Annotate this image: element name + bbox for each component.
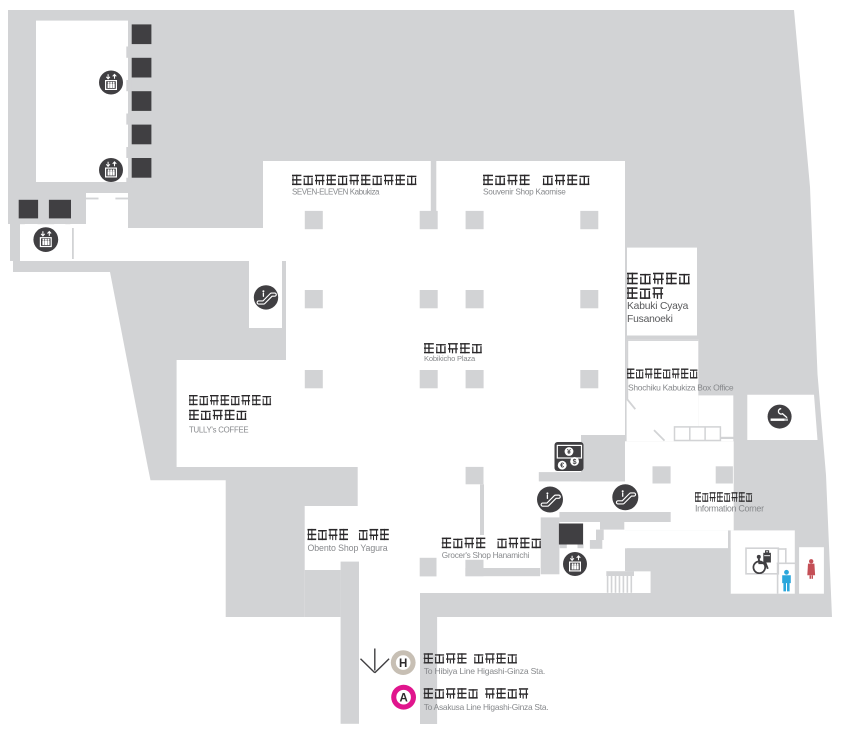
svg-text:To Hibiya Line Higashi-Ginza S: To Hibiya Line Higashi-Ginza Sta. [424, 666, 545, 676]
svg-text:H: H [399, 658, 407, 670]
svg-text:Grocer's Shop Hanamichi: Grocer's Shop Hanamichi [442, 551, 530, 560]
svg-text:$: $ [573, 459, 577, 466]
svg-text:Fusanoeki: Fusanoeki [627, 314, 673, 325]
svg-text:Shochiku Kabukiza Box Office: Shochiku Kabukiza Box Office [628, 382, 734, 392]
svg-text:Souvenir Shop Kaomise: Souvenir Shop Kaomise [483, 188, 566, 197]
svg-text:To Asakusa Line Higashi-Ginza: To Asakusa Line Higashi-Ginza Sta. [424, 702, 549, 712]
svg-text:€: € [560, 463, 564, 470]
svg-text:Obento Shop Yagura: Obento Shop Yagura [308, 543, 388, 553]
svg-text:A: A [399, 693, 407, 705]
svg-text:¥: ¥ [567, 449, 571, 456]
svg-text:TULLY's COFFEE: TULLY's COFFEE [189, 425, 248, 434]
svg-text:Kobikicho Plaza: Kobikicho Plaza [424, 354, 476, 363]
svg-text:SEVEN-ELEVEN Kabukiza: SEVEN-ELEVEN Kabukiza [292, 188, 380, 197]
svg-text:Information Corner: Information Corner [695, 504, 764, 514]
svg-text:Kabuki Cyaya: Kabuki Cyaya [627, 301, 689, 312]
